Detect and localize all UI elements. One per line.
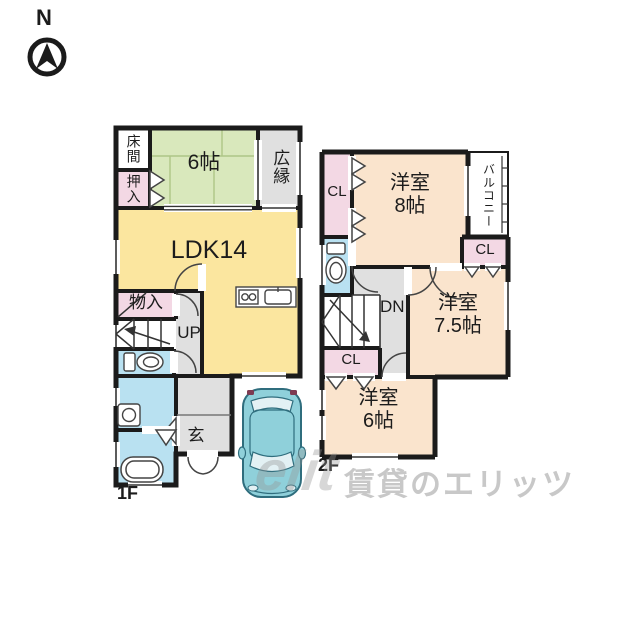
floorplan-svg: [0, 0, 640, 640]
car-taillight-left: [247, 390, 254, 395]
label-west75-name: 洋室: [408, 292, 508, 315]
label-west6-name: 洋室: [322, 387, 435, 410]
toilet2-icon: [326, 243, 346, 283]
kitchen-counter: [236, 287, 296, 307]
label-oshiire: 押入: [116, 170, 150, 207]
label-cl-c: CL: [322, 352, 380, 368]
toilet1-icon: [124, 353, 163, 371]
compass-north-label: N: [36, 6, 52, 30]
label-west8-size: 8帖: [352, 195, 468, 218]
label-west8: 洋室 8帖: [352, 172, 468, 218]
label-stairs-up: UP: [174, 324, 204, 342]
car-mirror-left: [239, 447, 246, 459]
label-tokonoma: 床間: [116, 129, 150, 168]
car-headlight-left: [248, 485, 258, 491]
kitchen-sink-icon: [265, 287, 291, 304]
label-genkan: 玄: [176, 427, 216, 445]
label-balcony: バルコニー: [468, 156, 508, 234]
kitchen-stove-icon: [239, 290, 258, 304]
label-west6: 洋室 6帖: [322, 387, 435, 433]
car-illustration: [239, 389, 306, 497]
corridor2: [380, 267, 408, 377]
label-cl-b: CL: [462, 242, 508, 258]
label-west75-size: 7.5帖: [408, 315, 508, 338]
label-floor2: 2F: [318, 456, 339, 475]
label-west8-name: 洋室: [352, 172, 468, 195]
stairs1-area: [116, 319, 176, 349]
label-floor1: 1F: [117, 484, 138, 503]
label-west6-size: 6帖: [322, 410, 435, 433]
label-cl-a: CL: [322, 184, 352, 200]
label-hiroen: 広縁: [258, 134, 300, 200]
label-west75: 洋室 7.5帖: [408, 292, 508, 338]
bathtub-icon: [121, 457, 163, 482]
car-headlight-right: [286, 485, 296, 491]
label-tatami6: 6帖: [150, 152, 258, 175]
washbasin-icon: [118, 404, 140, 426]
label-ldk: LDK14: [116, 237, 302, 264]
car-taillight-right: [290, 390, 297, 395]
label-stairs-dn: DN: [380, 298, 405, 316]
car-mirror-right: [299, 447, 306, 459]
compass-icon: [30, 40, 64, 74]
floorplan-canvas: N 床間 押入 6帖 広縁 LDK14 物入 UP 玄 1F CL 洋室 8帖 …: [0, 0, 640, 640]
label-storage: 物入: [116, 294, 176, 312]
